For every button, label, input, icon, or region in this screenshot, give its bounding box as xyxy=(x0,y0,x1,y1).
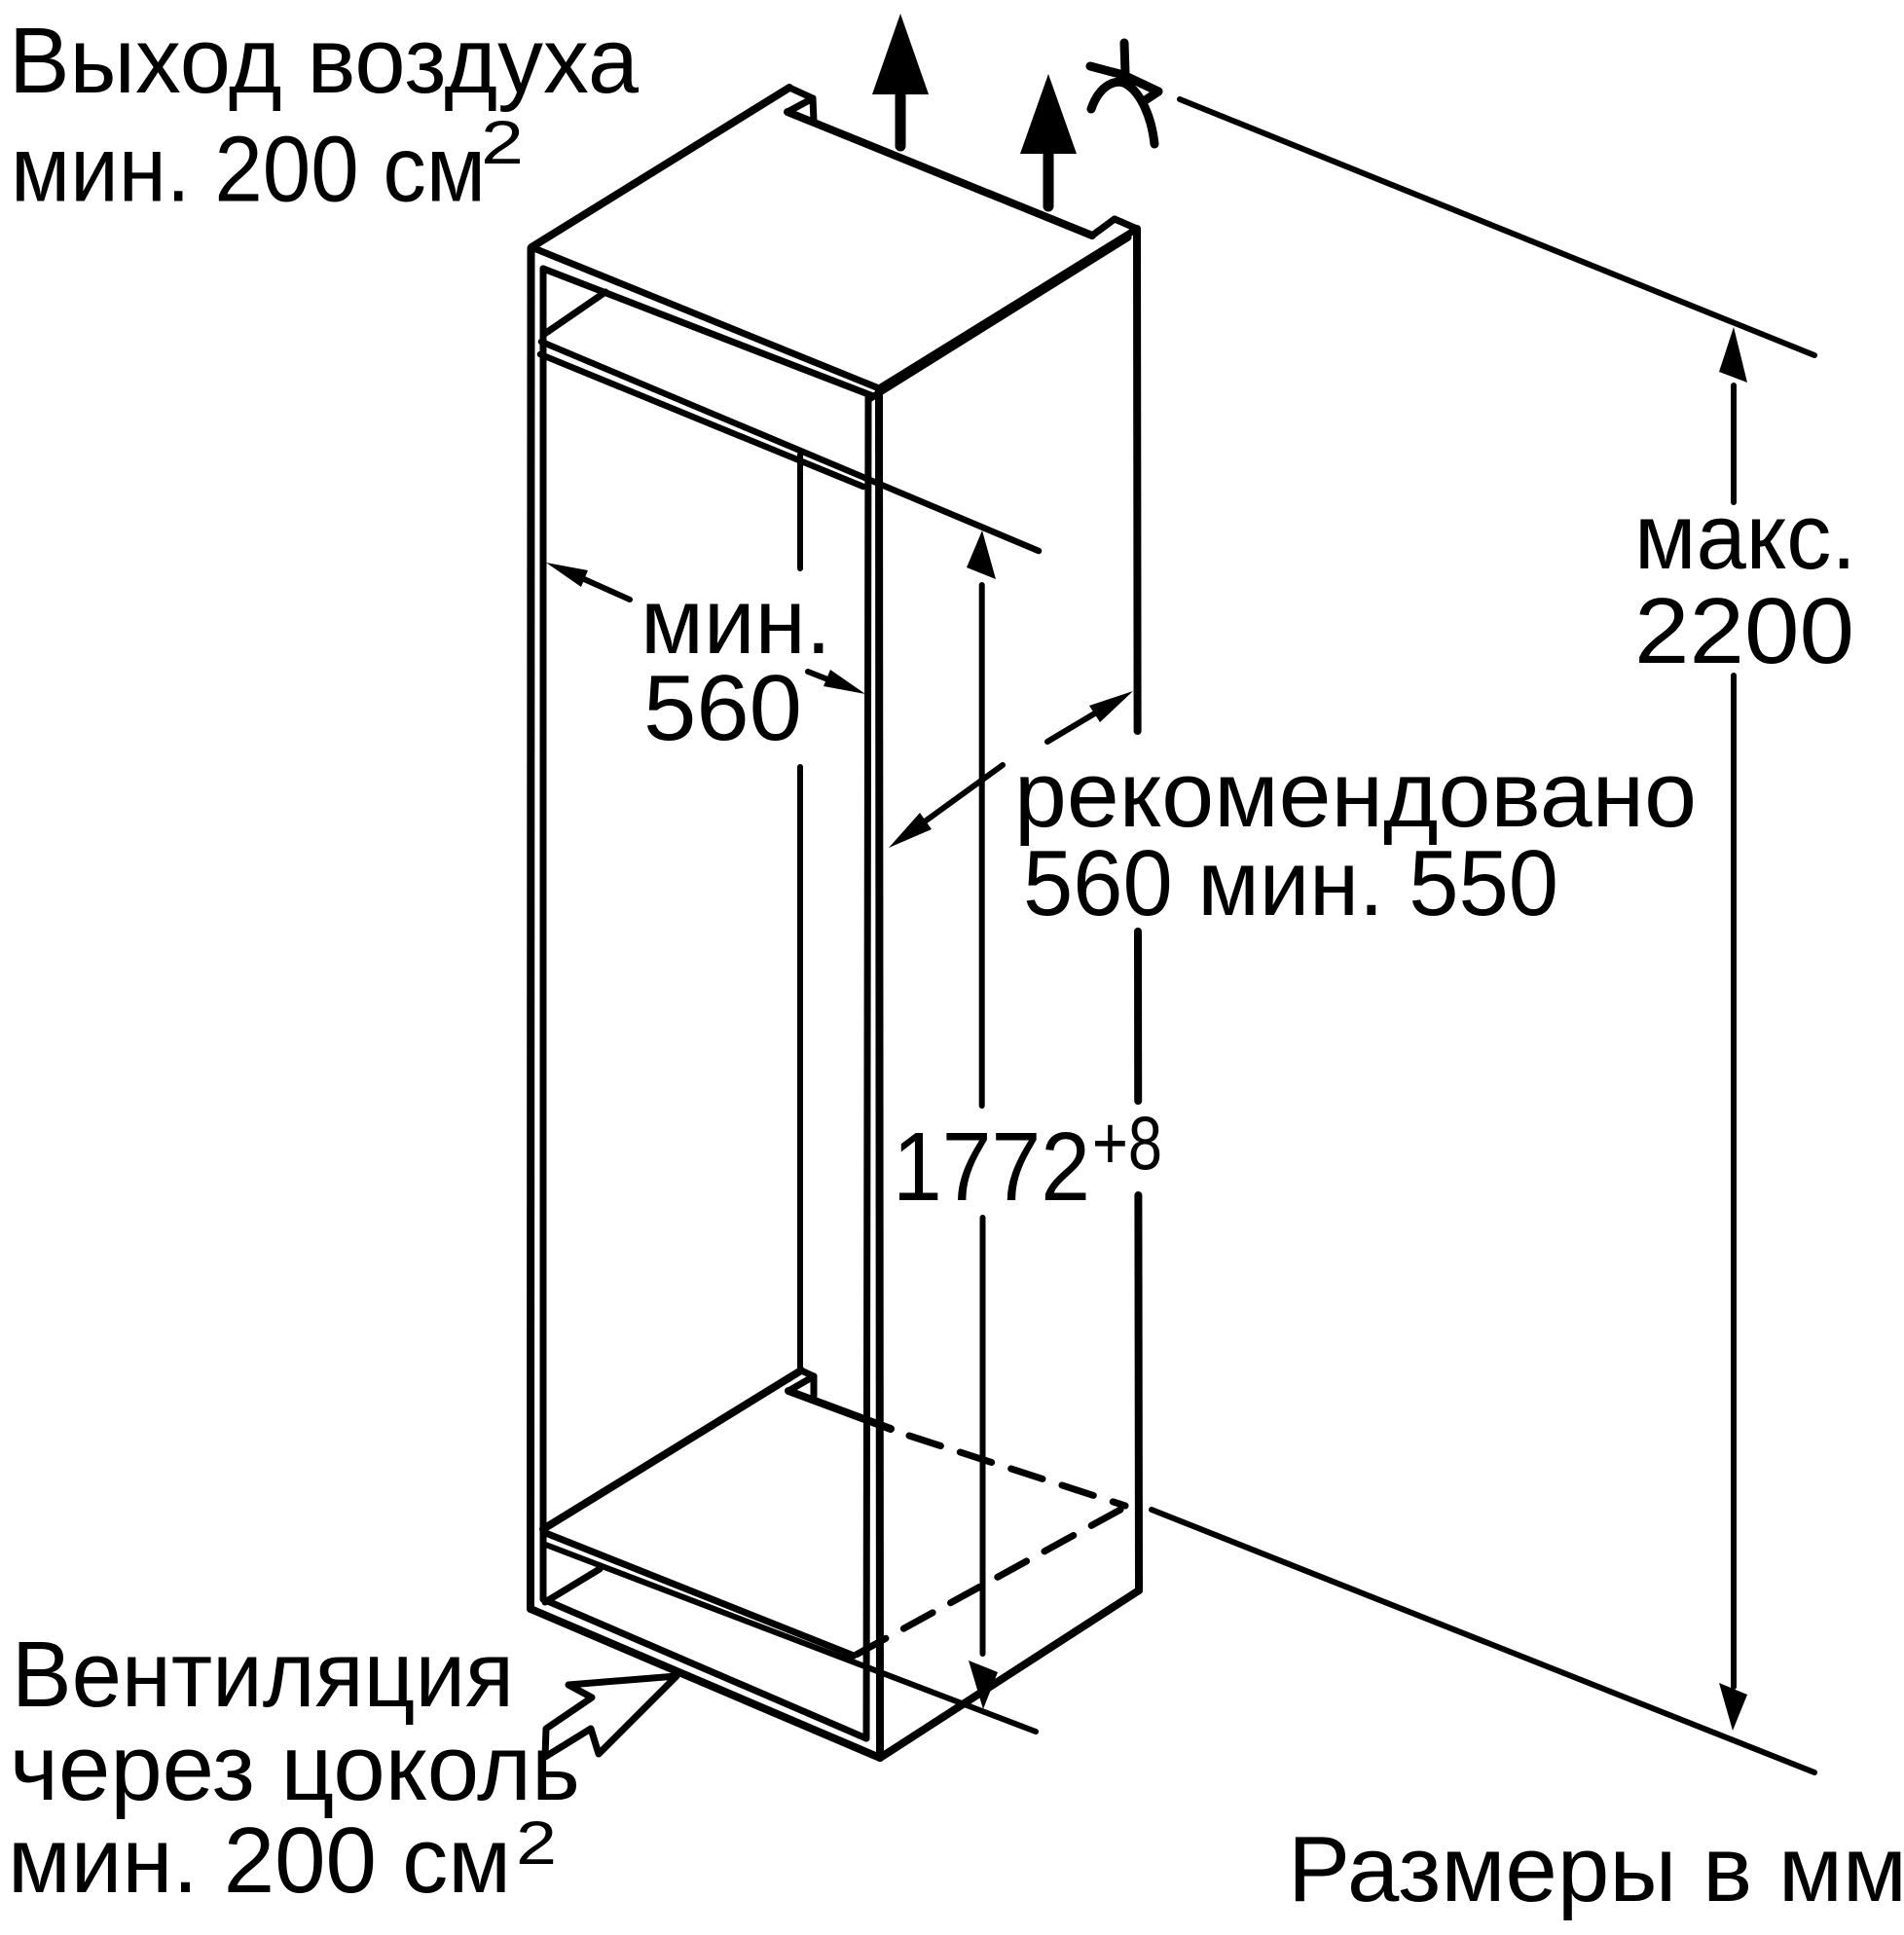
svg-text:Выход воздуха: Выход воздуха xyxy=(9,9,640,113)
svg-text:560 мин. 550: 560 мин. 550 xyxy=(1023,831,1558,935)
svg-text:1772: 1772 xyxy=(893,1113,1090,1222)
svg-text:2: 2 xyxy=(516,1809,557,1878)
svg-text:560: 560 xyxy=(643,656,802,760)
svg-text:2: 2 xyxy=(481,109,524,177)
svg-text:2200: 2200 xyxy=(1634,579,1854,683)
svg-text:мин. 200 см: мин. 200 см xyxy=(11,118,486,222)
svg-text:Размеры в мм: Размеры в мм xyxy=(1288,1817,1904,1921)
svg-text:Вентиляция: Вентиляция xyxy=(12,1623,514,1727)
svg-text:макс.: макс. xyxy=(1634,485,1856,589)
svg-text:+8: +8 xyxy=(1092,1100,1162,1186)
svg-text:мин. 200 см: мин. 200 см xyxy=(8,1808,511,1913)
svg-text:через цоколь: через цоколь xyxy=(10,1716,580,1820)
